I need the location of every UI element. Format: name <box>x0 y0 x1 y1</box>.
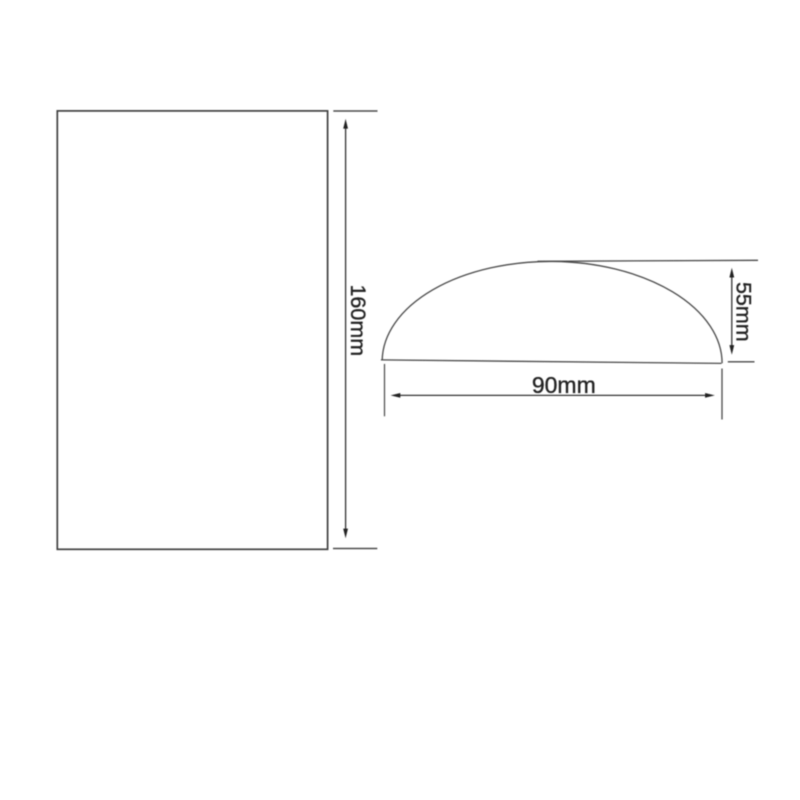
svg-text:90mm: 90mm <box>532 372 596 398</box>
svg-text:55mm: 55mm <box>731 282 755 342</box>
svg-text:160mm: 160mm <box>346 284 370 356</box>
